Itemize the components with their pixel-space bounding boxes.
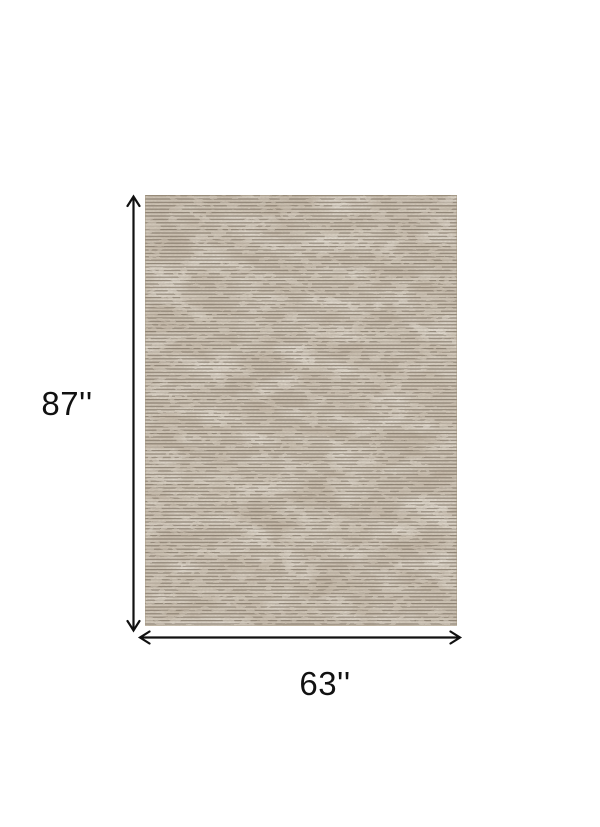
arrowhead-right-icon xyxy=(451,632,461,644)
rug-texture xyxy=(145,195,457,626)
width-dimension-arrow-icon xyxy=(140,632,460,644)
product-dimension-diagram: 87'' 63'' xyxy=(0,0,600,827)
rug-image xyxy=(145,195,457,626)
arrowhead-down-icon xyxy=(128,621,140,631)
arrowhead-up-icon xyxy=(128,197,140,207)
height-dimension-arrow-icon xyxy=(128,197,140,631)
rug-grain-layer xyxy=(145,195,457,626)
arrowhead-left-icon xyxy=(140,632,150,644)
width-dimension-label: 63'' xyxy=(270,664,380,704)
height-dimension-label: 87'' xyxy=(12,384,122,424)
